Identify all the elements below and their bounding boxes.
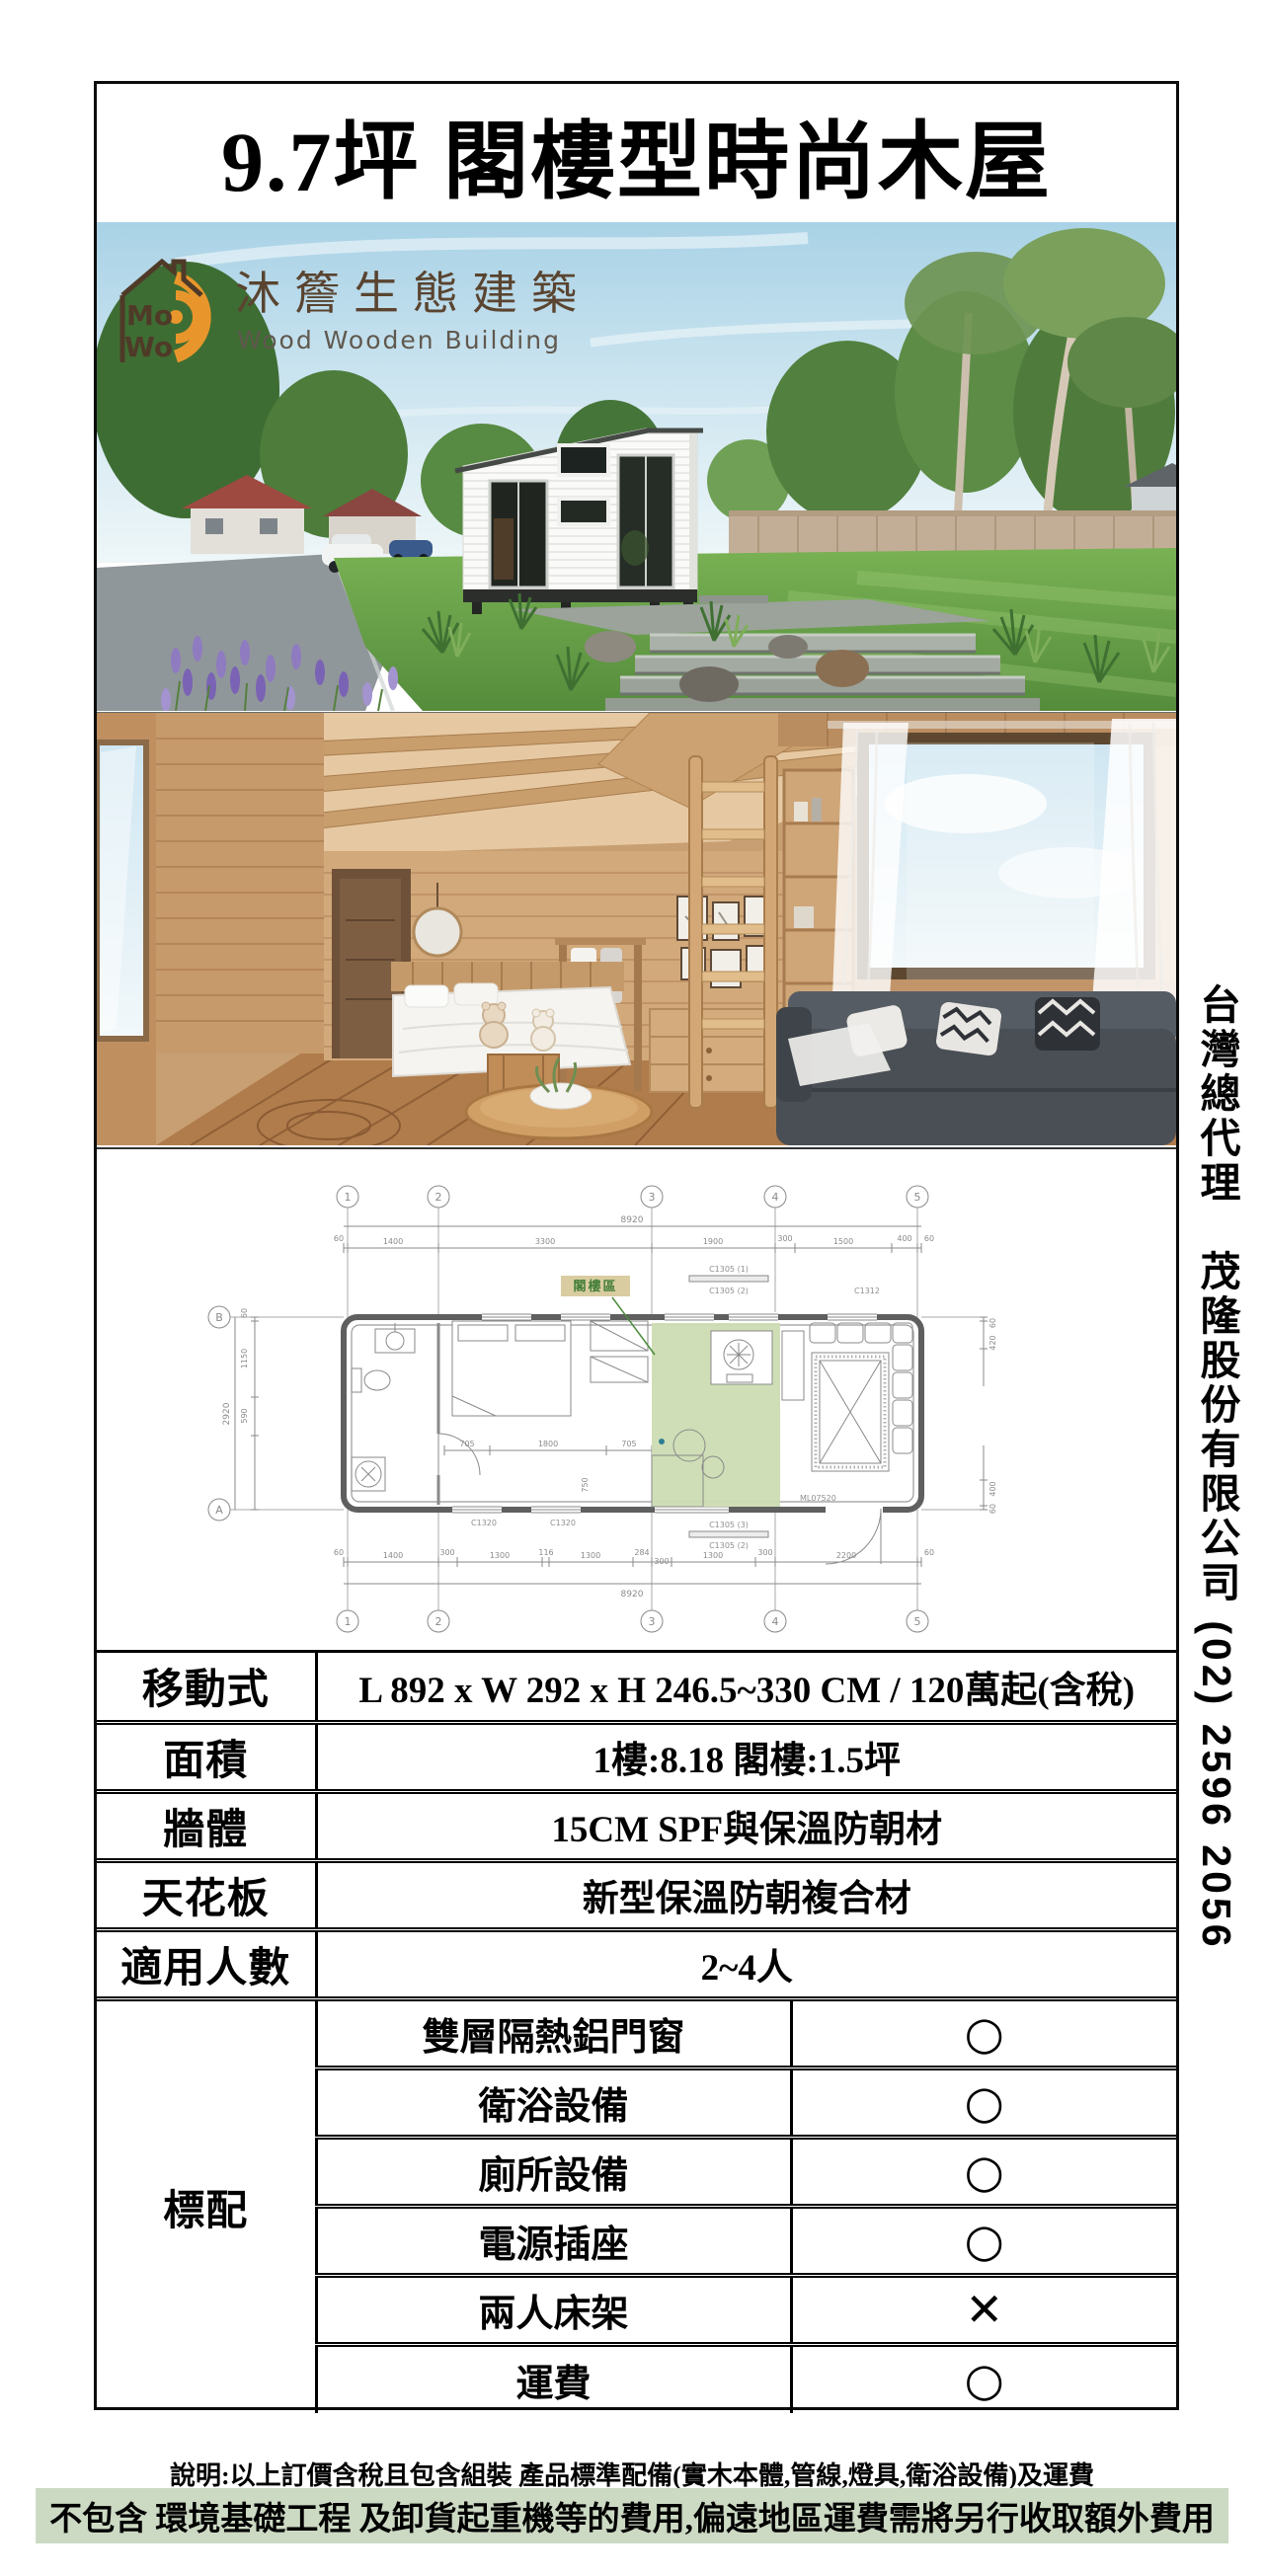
svg-text:1150: 1150 [240, 1349, 249, 1368]
standard-item-name: 雙層隔熱鋁門窗 [316, 1998, 791, 2068]
distributor-contact-vertical-text: 台灣總代理 茂隆股份有限公司 (02) 2596 2056 [1187, 983, 1246, 2000]
svg-text:60: 60 [924, 1234, 934, 1243]
standard-item-name: 衛浴設備 [316, 2068, 791, 2137]
included-mark: ○ [791, 1998, 1176, 2068]
standard-item-name: 廁所設備 [316, 2137, 791, 2206]
svg-text:1800: 1800 [538, 1440, 558, 1448]
right-dimensions: 60 420 400 60 [980, 1317, 997, 1514]
svg-text:60: 60 [240, 1308, 249, 1318]
included-mark: ○ [791, 2068, 1176, 2137]
kitchen-cabinet [782, 1331, 804, 1400]
svg-text:300: 300 [757, 1548, 772, 1557]
svg-text:2: 2 [435, 1615, 442, 1628]
spec-table: 移動式 L 892 x W 292 x H 246.5~330 CM / 120… [97, 1653, 1176, 2413]
svg-text:Wo: Wo [124, 331, 173, 363]
bottom-dimensions: 60 1400 300 1300 116 1300 284 300 1300 3… [334, 1548, 934, 1600]
svg-text:1400: 1400 [383, 1551, 403, 1560]
svg-text:300: 300 [439, 1548, 454, 1557]
table-row: 移動式 L 892 x W 292 x H 246.5~330 CM / 120… [97, 1653, 1176, 1722]
svg-text:C1305 (2): C1305 (2) [709, 1541, 749, 1550]
svg-text:60: 60 [988, 1318, 997, 1328]
svg-text:C1305 (2): C1305 (2) [709, 1287, 749, 1295]
svg-text:3300: 3300 [535, 1237, 555, 1246]
row-value: 1樓:8.18 閣樓:1.5坪 [316, 1722, 1176, 1791]
svg-text:705: 705 [459, 1440, 474, 1448]
included-mark: ○ [791, 2206, 1176, 2275]
svg-text:2920: 2920 [222, 1402, 232, 1425]
standard-item-name: 運費 [316, 2344, 791, 2413]
row-value: L 892 x W 292 x H 246.5~330 CM / 120萬起(含… [316, 1653, 1176, 1722]
svg-text:C1305 (3): C1305 (3) [709, 1521, 749, 1529]
left-dimensions: B A 60 1150 590 2920 [208, 1306, 259, 1521]
svg-text:C1320: C1320 [471, 1519, 497, 1527]
footer-exclusion-note-highlighted: 不包含 環境基礎工程 及卸貨起重機等的費用,偏遠地區運費需將另行收取額外費用 [36, 2488, 1228, 2543]
svg-text:A: A [215, 1504, 223, 1517]
standard-item-name: 電源插座 [316, 2206, 791, 2275]
logo-name-en: Wood Wooden Building [237, 326, 561, 354]
table-row: 面積 1樓:8.18 閣樓:1.5坪 [97, 1722, 1176, 1791]
svg-text:1300: 1300 [581, 1551, 600, 1560]
grid-bubbles-top: 1 2 3 4 5 [337, 1186, 928, 1208]
svg-text:2200: 2200 [836, 1551, 856, 1560]
excluded-mark: ✕ [791, 2275, 1176, 2344]
flyer-frame: 9.7坪 閣樓型時尚木屋 [94, 81, 1179, 2410]
svg-text:300: 300 [654, 1557, 669, 1566]
table-row: 牆體 15CM SPF與保溫防朝材 [97, 1791, 1176, 1860]
svg-text:60: 60 [334, 1548, 344, 1557]
svg-text:590: 590 [240, 1408, 249, 1423]
page-title: 9.7坪 閣樓型時尚木屋 [97, 84, 1176, 222]
included-mark: ○ [791, 2137, 1176, 2206]
sofa [776, 991, 1176, 1145]
exterior-photo: Mo Wo 沐簷生態建築 Wood Wooden Building [97, 222, 1176, 713]
grid-bubbles-bottom: 1 2 3 4 5 [337, 1610, 928, 1632]
svg-text:1300: 1300 [490, 1551, 510, 1560]
standard-config-label: 標配 [97, 1998, 316, 2413]
svg-text:4: 4 [772, 1615, 779, 1628]
svg-text:116: 116 [538, 1548, 553, 1557]
svg-text:60: 60 [334, 1234, 344, 1243]
svg-text:420: 420 [988, 1335, 997, 1350]
exterior-scene: Mo Wo 沐簷生態建築 Wood Wooden Building [97, 222, 1176, 711]
table-row: 天花板 新型保溫防朝複合材 [97, 1860, 1176, 1929]
logo-name-zh: 沐簷生態建築 [235, 267, 591, 320]
svg-text:8920: 8920 [621, 1590, 644, 1600]
row-value: 2~4人 [316, 1929, 1176, 1998]
svg-text:C1312: C1312 [854, 1287, 880, 1295]
svg-text:400: 400 [897, 1234, 911, 1243]
svg-text:C1320: C1320 [550, 1519, 576, 1527]
svg-text:ML07520: ML07520 [800, 1494, 836, 1503]
svg-text:300: 300 [777, 1234, 792, 1243]
top-dim-labels: 60 1400 3300 1900 300 1500 400 60 [334, 1234, 934, 1246]
svg-text:1300: 1300 [703, 1551, 723, 1560]
svg-text:750: 750 [581, 1477, 590, 1492]
interior-scene [97, 713, 1176, 1145]
row-label: 面積 [97, 1722, 316, 1791]
svg-text:閣樓區: 閣樓區 [573, 1279, 617, 1294]
row-value: 新型保溫防朝複合材 [316, 1860, 1176, 1929]
svg-text:2: 2 [435, 1191, 442, 1204]
svg-text:1400: 1400 [383, 1237, 403, 1246]
table-row: 標配 雙層隔熱鋁門窗 ○ [97, 1998, 1176, 2068]
included-mark: ○ [791, 2344, 1176, 2413]
top-dimensions: 8920 60 1400 3300 1900 300 1500 400 60 [334, 1215, 934, 1253]
svg-text:1: 1 [345, 1615, 352, 1628]
row-label: 移動式 [97, 1653, 316, 1722]
svg-text:Mo: Mo [126, 299, 173, 332]
loft-area [652, 1323, 780, 1507]
spec-section: 移動式 L 892 x W 292 x H 246.5~330 CM / 120… [97, 1650, 1176, 2413]
svg-text:60: 60 [924, 1548, 934, 1557]
row-label: 適用人數 [97, 1929, 316, 1998]
svg-text:1900: 1900 [703, 1237, 723, 1246]
svg-text:3: 3 [649, 1615, 656, 1628]
svg-text:4: 4 [772, 1191, 779, 1204]
svg-text:1500: 1500 [833, 1237, 853, 1246]
svg-text:60: 60 [988, 1504, 997, 1514]
svg-text:5: 5 [914, 1615, 921, 1628]
floorplan-drawing: 8920 60 1400 3300 1900 300 1500 400 60 [97, 1149, 1176, 1650]
svg-text:3: 3 [649, 1191, 656, 1204]
svg-text:284: 284 [634, 1548, 649, 1557]
interior-photo [97, 713, 1176, 1149]
svg-text:1: 1 [345, 1191, 352, 1204]
svg-text:400: 400 [988, 1481, 997, 1496]
svg-text:705: 705 [621, 1440, 636, 1448]
standard-item-name: 兩人床架 [316, 2275, 791, 2344]
svg-text:C1305 (1): C1305 (1) [709, 1265, 749, 1274]
svg-text:B: B [215, 1311, 223, 1324]
svg-text:5: 5 [914, 1191, 921, 1204]
footer-note: 說明:以上訂價含稅且包含組裝 產品標準配備(實木本體,管線,燈具,衛浴設備)及運… [0, 2456, 1264, 2492]
table-row: 適用人數 2~4人 [97, 1929, 1176, 1998]
svg-text:8920: 8920 [621, 1215, 644, 1225]
row-label: 天花板 [97, 1860, 316, 1929]
row-label: 牆體 [97, 1791, 316, 1860]
row-value: 15CM SPF與保溫防朝材 [316, 1791, 1176, 1860]
floorplan-section: 8920 60 1400 3300 1900 300 1500 400 60 [97, 1149, 1176, 1650]
